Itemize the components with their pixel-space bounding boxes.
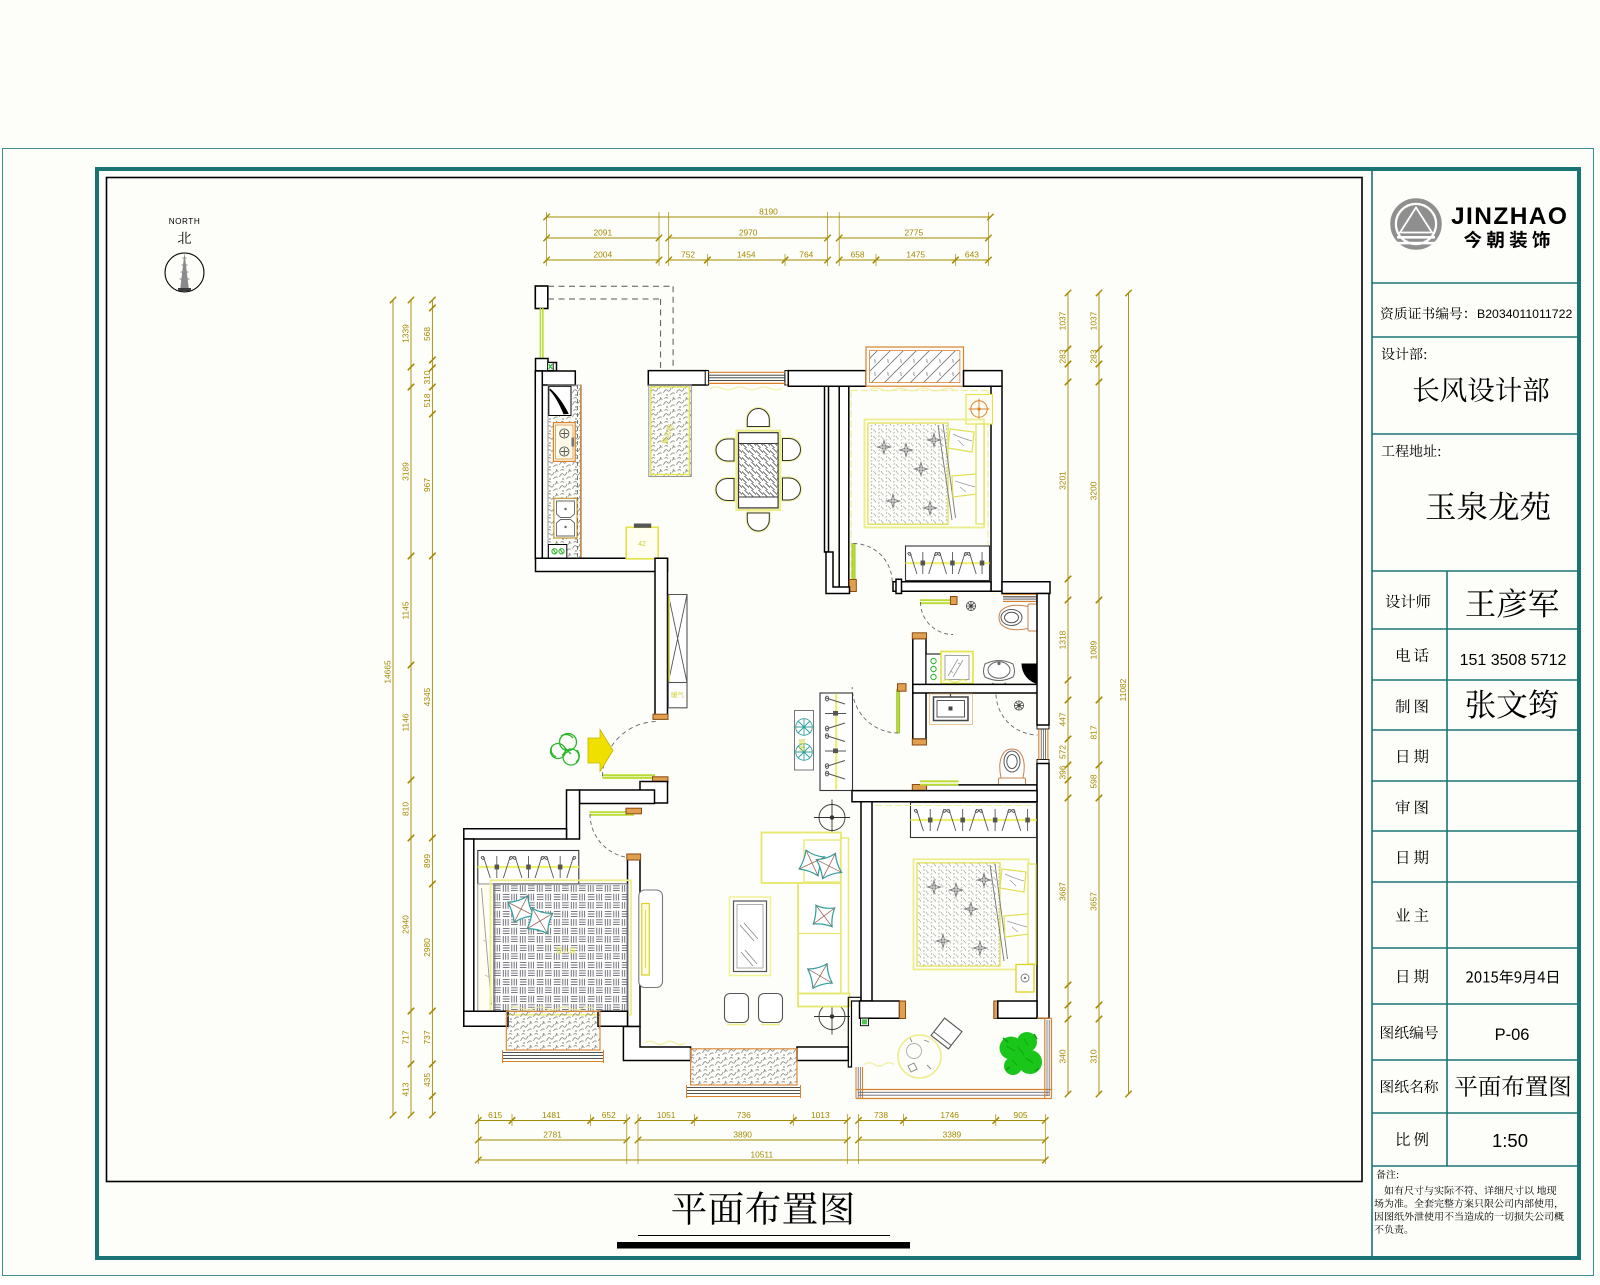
svg-text:暖气: 暖气 <box>671 690 685 699</box>
svg-text:817: 817 <box>1089 725 1099 739</box>
svg-text:1746: 1746 <box>940 1110 959 1120</box>
svg-text:3200: 3200 <box>1089 481 1099 500</box>
svg-text:643: 643 <box>965 250 979 260</box>
svg-text:3890: 3890 <box>733 1130 752 1140</box>
svg-text:2940: 2940 <box>401 915 411 934</box>
svg-text:1037: 1037 <box>1058 311 1068 330</box>
svg-text:绿植: 绿植 <box>797 738 806 752</box>
svg-text:3657: 3657 <box>1089 892 1099 911</box>
svg-text:双人床: 双人床 <box>556 946 577 955</box>
svg-text:340: 340 <box>1058 1049 1068 1063</box>
svg-text:899: 899 <box>422 854 432 868</box>
svg-text:568: 568 <box>422 327 432 341</box>
svg-text:738: 738 <box>874 1110 888 1120</box>
svg-text:905: 905 <box>1014 1110 1028 1120</box>
svg-text:3201: 3201 <box>1058 471 1068 490</box>
svg-text:752: 752 <box>681 250 695 260</box>
svg-text:615: 615 <box>488 1110 502 1120</box>
svg-text:8190: 8190 <box>759 207 778 217</box>
svg-text:JINZHAO: JINZHAO <box>1451 203 1568 230</box>
svg-text:1:50: 1:50 <box>1492 1130 1528 1151</box>
svg-text:1037: 1037 <box>1089 311 1099 330</box>
svg-text:151 3508 5712: 151 3508 5712 <box>1460 652 1567 669</box>
svg-text:2004: 2004 <box>593 250 612 260</box>
svg-text:396: 396 <box>1058 765 1068 779</box>
svg-text:736: 736 <box>737 1110 751 1120</box>
svg-text:3687: 3687 <box>1058 882 1068 901</box>
svg-text:2775: 2775 <box>904 228 923 238</box>
svg-text:967: 967 <box>422 478 432 492</box>
svg-text:10511: 10511 <box>750 1150 773 1160</box>
svg-text:3189: 3189 <box>401 462 411 481</box>
svg-text:283: 283 <box>1058 349 1068 363</box>
svg-text:764: 764 <box>799 250 813 260</box>
svg-text:4345: 4345 <box>422 687 432 706</box>
svg-text:P-06: P-06 <box>1495 1026 1530 1044</box>
svg-text:518: 518 <box>422 393 432 407</box>
svg-text:598: 598 <box>1089 774 1099 788</box>
svg-text:1318: 1318 <box>1058 630 1068 649</box>
svg-text:310: 310 <box>1089 1049 1099 1063</box>
svg-text:810: 810 <box>401 802 411 816</box>
svg-text:1339: 1339 <box>401 324 411 343</box>
svg-text:1454: 1454 <box>737 250 756 260</box>
svg-text:283: 283 <box>1089 349 1099 363</box>
svg-text:572: 572 <box>1058 745 1068 759</box>
svg-text:447: 447 <box>1058 712 1068 726</box>
svg-text:1145: 1145 <box>401 601 411 619</box>
svg-text:1475: 1475 <box>906 250 925 260</box>
svg-text:310: 310 <box>422 370 432 384</box>
svg-text:413: 413 <box>401 1082 411 1096</box>
svg-text:3389: 3389 <box>943 1130 962 1140</box>
svg-text:1051: 1051 <box>657 1110 676 1120</box>
svg-text:1146: 1146 <box>401 713 411 731</box>
svg-text:42: 42 <box>638 541 646 548</box>
svg-text:2091: 2091 <box>593 228 612 238</box>
svg-text:2980: 2980 <box>422 938 432 957</box>
svg-text:NORTH: NORTH <box>169 217 200 226</box>
svg-text:1481: 1481 <box>542 1110 561 1120</box>
svg-text:1013: 1013 <box>811 1110 830 1120</box>
svg-text:737: 737 <box>422 1030 432 1044</box>
svg-text:14665: 14665 <box>383 660 393 684</box>
svg-text:435: 435 <box>422 1073 432 1087</box>
svg-text:2781: 2781 <box>543 1130 562 1140</box>
svg-text:658: 658 <box>851 250 865 260</box>
svg-text:11082: 11082 <box>1118 678 1128 701</box>
svg-text:652: 652 <box>602 1110 616 1120</box>
svg-text:717: 717 <box>401 1030 411 1044</box>
svg-text:2970: 2970 <box>739 228 758 238</box>
svg-text:1089: 1089 <box>1089 640 1099 659</box>
svg-text:B2034011011722: B2034011011722 <box>1477 307 1572 321</box>
